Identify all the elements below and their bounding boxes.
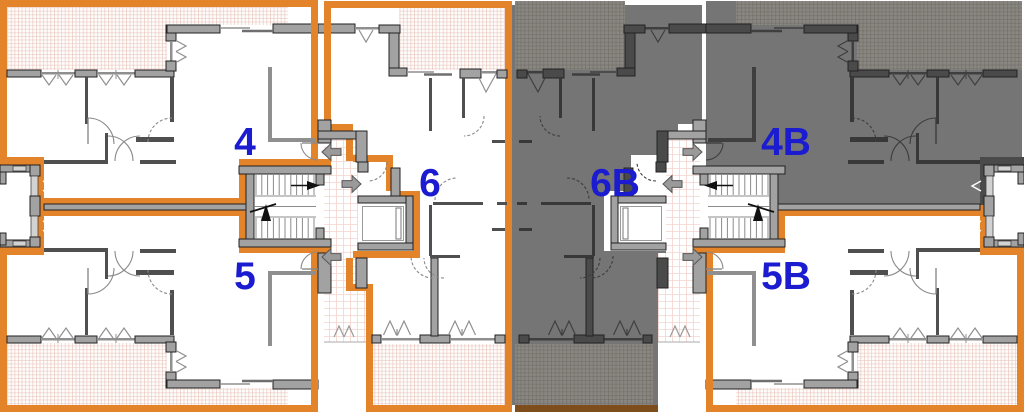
svg-text:5: 5 [234, 255, 256, 298]
svg-text:4B: 4B [761, 121, 811, 164]
svg-text:6: 6 [419, 162, 441, 205]
svg-text:5B: 5B [761, 255, 811, 298]
svg-text:6B: 6B [590, 162, 640, 205]
svg-text:4: 4 [234, 121, 256, 164]
